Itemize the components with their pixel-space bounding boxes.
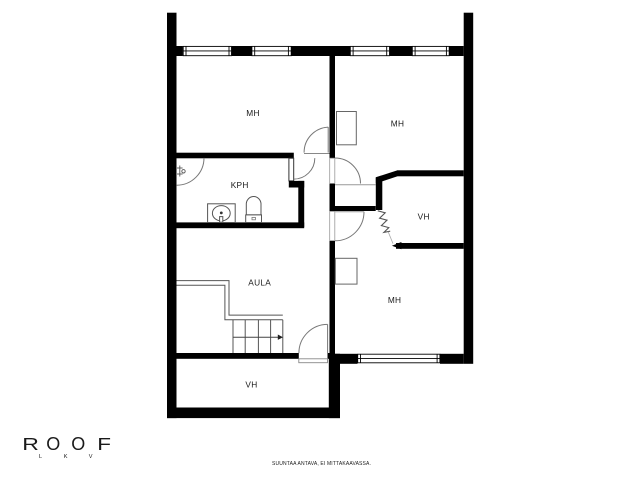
- svg-text:O: O: [71, 434, 85, 454]
- svg-text:KPH: KPH: [231, 180, 249, 190]
- svg-text:R: R: [22, 434, 39, 454]
- svg-text:MH: MH: [388, 295, 402, 305]
- svg-text:SUUNTAA ANTAVA, EI MITTAKAAVAS: SUUNTAA ANTAVA, EI MITTAKAAVASSA.: [272, 461, 371, 467]
- svg-text:AULA: AULA: [248, 277, 271, 287]
- svg-text:O: O: [46, 434, 60, 454]
- svg-text:K: K: [64, 454, 68, 460]
- svg-text:VH: VH: [418, 212, 430, 222]
- svg-text:MH: MH: [391, 119, 405, 129]
- svg-text:VH: VH: [245, 380, 257, 390]
- svg-text:MH: MH: [246, 108, 260, 118]
- svg-text:F: F: [97, 435, 111, 454]
- svg-text:L: L: [39, 454, 42, 460]
- svg-text:V: V: [89, 454, 93, 460]
